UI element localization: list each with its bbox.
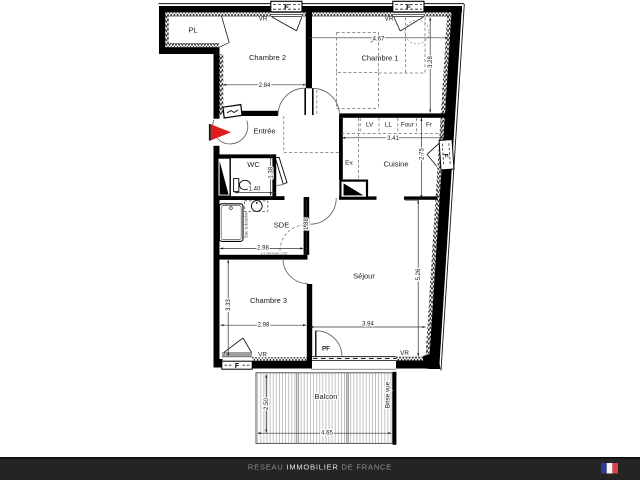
svg-text:Chambre 3: Chambre 3 bbox=[250, 296, 287, 305]
svg-text:Cuisine: Cuisine bbox=[383, 159, 408, 168]
svg-text:WC: WC bbox=[247, 160, 260, 169]
svg-text:Brise vue: Brise vue bbox=[385, 381, 392, 408]
svg-text:F: F bbox=[284, 2, 289, 11]
svg-text:VR: VR bbox=[400, 350, 409, 357]
svg-text:Entrée: Entrée bbox=[253, 127, 275, 136]
svg-text:F: F bbox=[235, 363, 240, 370]
svg-text:2.75: 2.75 bbox=[419, 148, 425, 160]
svg-text:4.67: 4.67 bbox=[373, 37, 385, 43]
svg-text:5.26: 5.26 bbox=[416, 268, 422, 280]
svg-text:PF: PF bbox=[322, 345, 330, 352]
svg-text:2.50: 2.50 bbox=[264, 398, 270, 410]
svg-text:F: F bbox=[442, 154, 449, 158]
svg-text:LV: LV bbox=[366, 122, 374, 129]
svg-text:VR: VR bbox=[259, 15, 268, 22]
svg-text:3.41: 3.41 bbox=[387, 136, 399, 142]
svg-text:VR: VR bbox=[385, 15, 394, 22]
svg-text:RESEAU IMMOBILIER DE FRANCE: RESEAU IMMOBILIER DE FRANCE bbox=[248, 463, 392, 472]
svg-text:3.33: 3.33 bbox=[226, 299, 232, 311]
svg-text:3.28: 3.28 bbox=[428, 56, 434, 68]
svg-text:s.s rampant 1.80: s.s rampant 1.80 bbox=[261, 252, 288, 256]
svg-text:Balcon: Balcon bbox=[315, 392, 338, 401]
svg-text:Four: Four bbox=[401, 122, 414, 129]
svg-text:4.65: 4.65 bbox=[321, 430, 333, 436]
svg-text:Bac à douche: Bac à douche bbox=[244, 212, 249, 238]
svg-text:2.84: 2.84 bbox=[259, 83, 271, 89]
svg-text:Chambre 2: Chambre 2 bbox=[249, 53, 286, 62]
svg-text:LL: LL bbox=[385, 122, 393, 129]
svg-text:SDE: SDE bbox=[274, 221, 289, 230]
svg-text:1.38: 1.38 bbox=[269, 166, 275, 178]
svg-text:3.94: 3.94 bbox=[362, 322, 374, 328]
svg-text:2.98: 2.98 bbox=[258, 322, 270, 328]
svg-text:Chambre 1: Chambre 1 bbox=[361, 54, 398, 63]
svg-text:1.88: 1.88 bbox=[304, 218, 310, 230]
svg-text:VR: VR bbox=[258, 352, 267, 359]
svg-text:Fr: Fr bbox=[426, 122, 432, 129]
svg-text:Séjour: Séjour bbox=[353, 272, 375, 281]
svg-text:Ev.: Ev. bbox=[345, 159, 354, 166]
svg-text:F: F bbox=[406, 2, 411, 11]
svg-text:1.40: 1.40 bbox=[249, 187, 261, 193]
svg-text:PL: PL bbox=[188, 26, 197, 35]
